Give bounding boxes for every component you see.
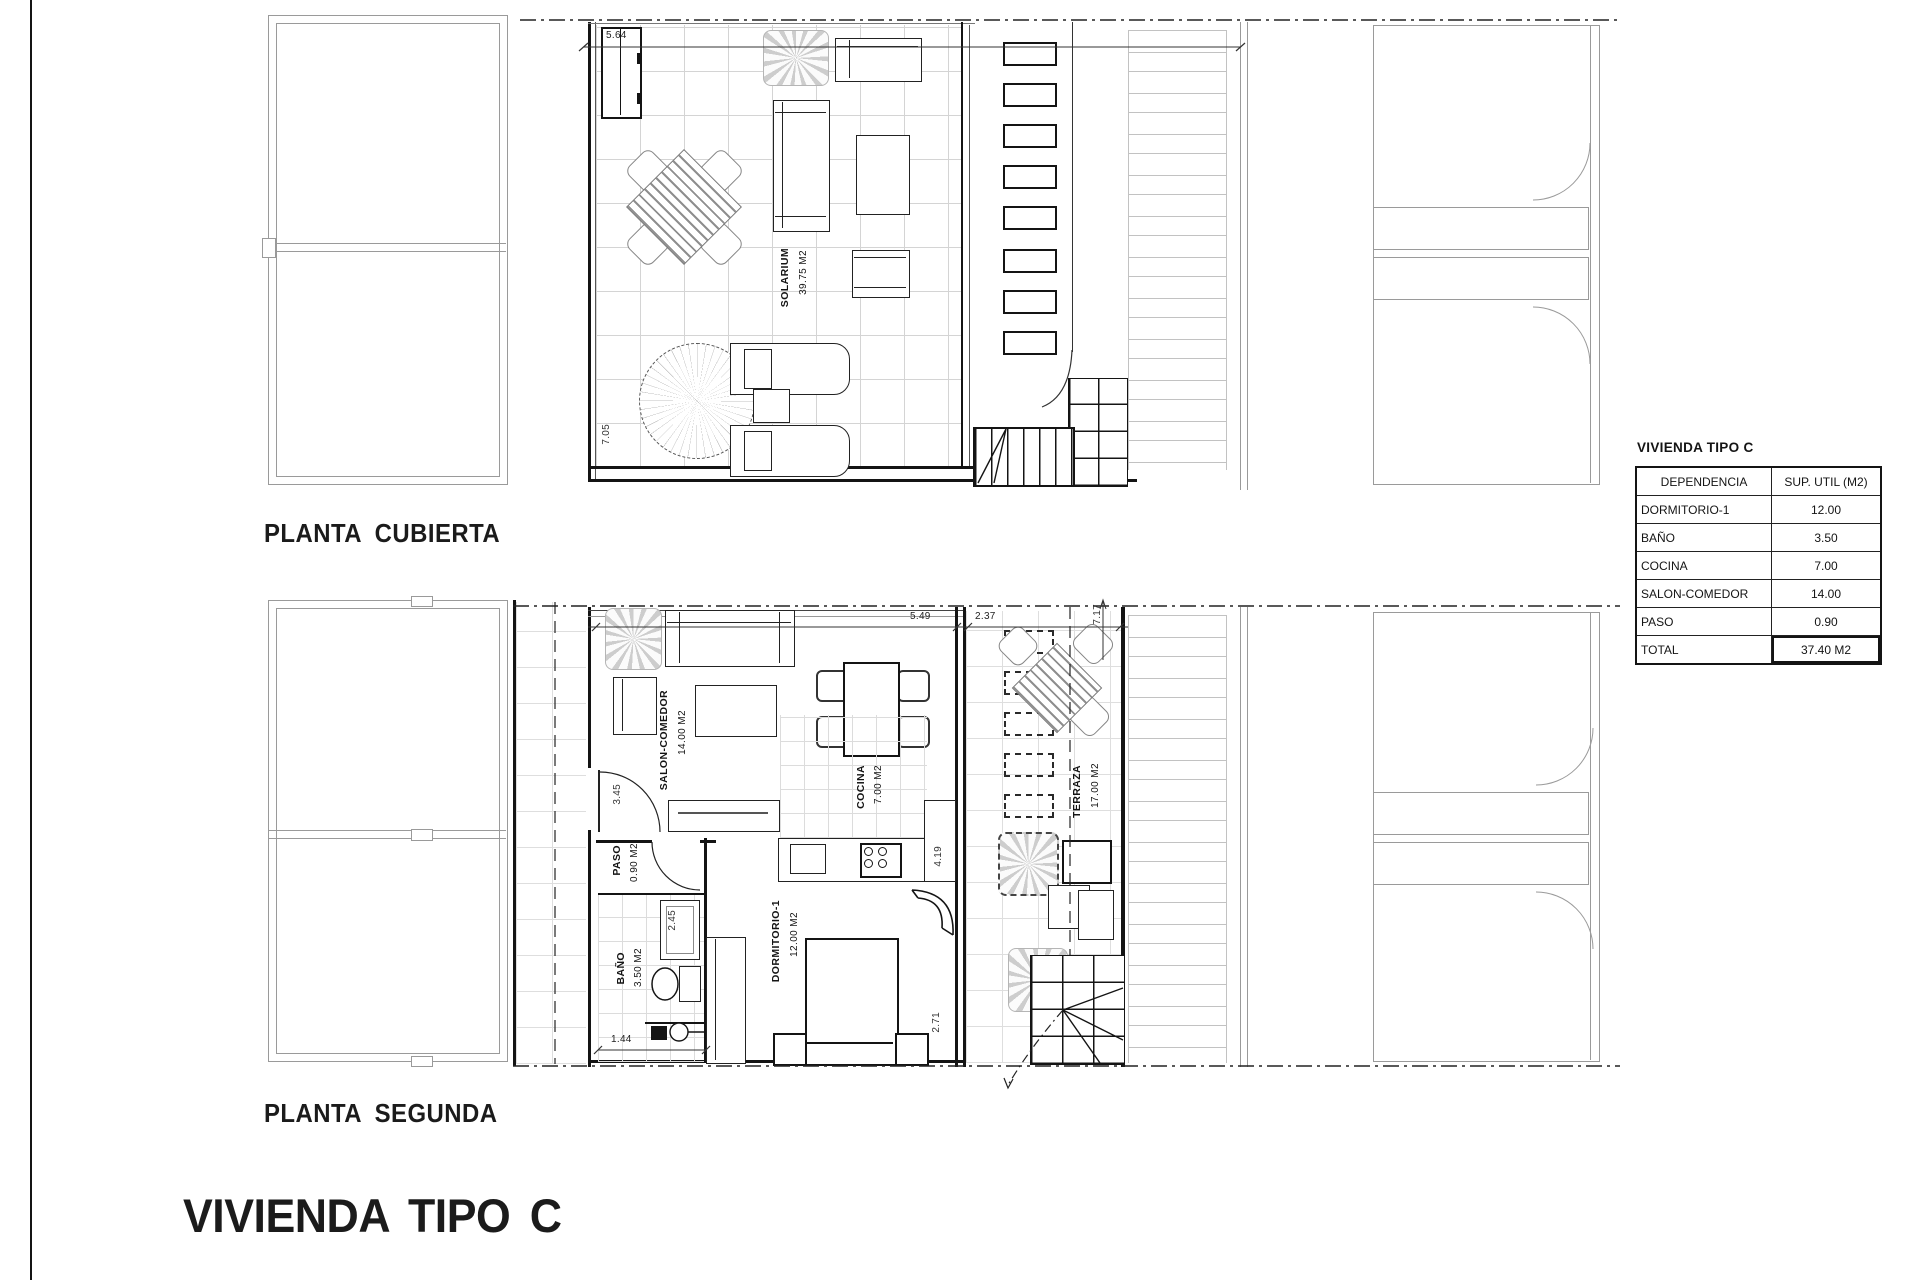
pergola-beam-1	[1003, 42, 1057, 66]
pergola-beam-5	[1003, 206, 1057, 230]
vanity-cabinet	[651, 1026, 667, 1040]
table-row: SALON-COMEDOR 14.00	[1636, 580, 1881, 608]
summary-header-row: DEPENDENCIA SUP. UTIL (M2)	[1636, 467, 1881, 496]
p2-entry-door-leaf	[598, 770, 600, 832]
plan-segunda-title: PLANTA SEGUNDA	[264, 1100, 497, 1126]
sheet-title: VIVIENDA TIPO C	[183, 1192, 562, 1239]
cocina-floor	[780, 715, 927, 838]
bano-area: 3.50 M2	[632, 948, 645, 987]
table-row: COCINA 7.00	[1636, 552, 1881, 580]
winder-stair	[1030, 955, 1125, 1065]
p2-party-line-a	[1240, 607, 1241, 1067]
wardrobe-inner-line	[715, 939, 716, 1060]
p1-wall-left-inner	[595, 22, 596, 482]
p1-wall-top	[588, 23, 975, 24]
p1-sofa-side-back	[782, 102, 783, 228]
row-total-value: 37.40 M2	[1772, 636, 1882, 665]
burner-4	[878, 859, 887, 868]
bedroom-armchair	[912, 890, 953, 935]
p2-dining-chair-3	[897, 670, 930, 702]
p2-neighbour-slats	[1128, 615, 1227, 1063]
summary-header-sup-util: SUP. UTIL (M2)	[1772, 467, 1882, 496]
p2-planter-salon	[605, 608, 662, 670]
p2-dim-bano-interior: 2.45	[668, 910, 678, 931]
p1-stair-landing	[1068, 378, 1128, 487]
table-row: BAÑO 3.50	[1636, 524, 1881, 552]
stair-exit-arrow	[1004, 1078, 1013, 1088]
cocina-area: 7.00 M2	[872, 765, 885, 804]
p1-stair-flight	[973, 427, 1075, 487]
p1-sofa-side-arm-bottom	[775, 216, 826, 217]
p2-wall-left-lower	[588, 830, 591, 1067]
p2-armchair-back	[622, 679, 623, 731]
cocina-label: COCINA	[855, 765, 869, 809]
row-bano-name: BAÑO	[1636, 524, 1772, 552]
solarium-area: 39.75 M2	[797, 250, 810, 295]
summary-table-title: VIVIENDA TIPO C	[1637, 440, 1754, 455]
wardrobe	[706, 937, 746, 1064]
p2-sofa	[665, 610, 795, 667]
p2-left-unit-inner	[276, 608, 500, 1054]
dormitorio-label: DORMITORIO-1	[770, 900, 784, 982]
p1-wall-right-inner	[969, 25, 970, 468]
table-row: PASO 0.90	[1636, 608, 1881, 636]
summary-table: DEPENDENCIA SUP. UTIL (M2) DORMITORIO-1 …	[1635, 466, 1882, 665]
p1-left-unit-divider-a	[268, 243, 506, 244]
row-cocina-value: 7.00	[1772, 552, 1882, 580]
row-paso-value: 0.90	[1772, 608, 1882, 636]
p1-dim-left: 7.05	[602, 424, 612, 445]
row-bano-value: 3.50	[1772, 524, 1882, 552]
bano-label: BAÑO	[615, 952, 629, 985]
row-cocina-name: COCINA	[1636, 552, 1772, 580]
plan-cubierta-title: PLANTA CUBIERTA	[264, 520, 500, 546]
paso-area: 0.90 M2	[628, 843, 641, 882]
p2-sofa-back	[667, 622, 791, 623]
pergola-beam-4	[1003, 165, 1057, 189]
p1-side-table-line-b	[854, 287, 906, 288]
drawing-sheet: 5.64 7.05 SOLARIUM 39.75 M2 PLANTA CUBIE…	[0, 0, 1920, 1280]
terraza-table	[1062, 840, 1112, 884]
p1-left-unit-window-notch	[262, 238, 276, 258]
burner-3	[864, 859, 873, 868]
chimney-tick-1	[637, 53, 642, 64]
p2-left-unit-notch-mid	[411, 829, 433, 841]
p1-left-unit-inner	[276, 23, 500, 477]
lounger-1-pillow	[744, 349, 772, 389]
p1-wall-left	[588, 22, 591, 482]
chimney-tick-2	[637, 93, 642, 104]
p2-left-unit-divider-a	[268, 830, 506, 831]
p2-right-unit-band-1	[1373, 792, 1589, 835]
solarium-label: SOLARIUM	[779, 248, 793, 307]
paso-door-arc	[652, 842, 700, 890]
entry-door-arc	[600, 772, 660, 832]
dormitorio-area: 12.00 M2	[788, 912, 801, 957]
lounger-2-pillow	[744, 431, 772, 471]
p2-left-unit-notch-bottom	[411, 1056, 433, 1067]
p2-sofa-arm-l	[679, 612, 680, 663]
p1-side-table-line-a	[854, 257, 906, 258]
paso-label: PASO	[611, 845, 625, 876]
p2-dim-width-terraza: 2.37	[975, 612, 996, 622]
nightstand-left	[773, 1033, 807, 1066]
p1-wall-right	[961, 22, 963, 468]
p1-walkway-line	[1072, 22, 1073, 352]
burner-1	[864, 847, 873, 856]
p2-party-line-b	[1247, 607, 1248, 1067]
terraza-chair-b	[1078, 890, 1114, 940]
p1-planter	[763, 30, 829, 86]
sheet-border-left	[30, 0, 32, 1280]
toilet-tank	[679, 966, 701, 1002]
row-dormitorio-name: DORMITORIO-1	[1636, 496, 1772, 524]
lounger-table	[753, 389, 790, 423]
p1-right-unit-band-1	[1373, 207, 1589, 250]
pergola-beam-7	[1003, 290, 1057, 314]
terraza-beam-4	[1004, 753, 1054, 777]
terraza-label: TERRAZA	[1071, 765, 1085, 818]
walkway-floor	[516, 602, 586, 1064]
p1-sofa-side-arm-top	[775, 112, 826, 113]
table-row: TOTAL 37.40 M2	[1636, 636, 1881, 665]
pergola-beam-8	[1003, 331, 1057, 355]
pergola-beam-3	[1003, 124, 1057, 148]
p2-dim-dormitorio: 2.71	[932, 1012, 942, 1033]
burner-2	[878, 847, 887, 856]
p1-dim-top: 5.64	[606, 31, 627, 41]
p2-right-unit-edge	[1590, 612, 1591, 1060]
p2-sofa-arm-r	[779, 612, 780, 663]
p2-dim-bano-width: 1.44	[611, 1035, 632, 1045]
table-row: DORMITORIO-1 12.00	[1636, 496, 1881, 524]
bed-fold-line	[807, 1042, 893, 1044]
salon-label: SALON-COMEDOR	[658, 690, 672, 790]
p2-left-unit-notch-top	[411, 596, 433, 607]
p2-dim-width-main: 5.49	[910, 612, 931, 622]
p2-coffee-table	[695, 685, 777, 737]
chimney-inner-line	[620, 29, 621, 115]
terraza-beam-5	[1004, 794, 1054, 818]
p1-neighbour-slats	[1128, 30, 1227, 470]
p1-right-unit-edge	[1590, 25, 1591, 483]
p1-coffee-table	[856, 135, 910, 215]
nightstand-right	[895, 1033, 929, 1066]
p2-wall-salon-paso-b	[700, 840, 716, 843]
p2-armchair	[613, 677, 657, 735]
p2-dim-cocina: 4.19	[934, 846, 944, 867]
row-salon-name: SALON-COMEDOR	[1636, 580, 1772, 608]
pergola-beam-6	[1003, 249, 1057, 273]
p2-wall-salon-paso-a	[596, 840, 652, 843]
terraza-area: 17.00 M2	[1089, 763, 1102, 808]
row-paso-name: PASO	[1636, 608, 1772, 636]
p2-wall-left-upper	[588, 607, 591, 768]
p1-right-unit-band-2	[1373, 257, 1589, 300]
p1-sofa-top-back	[837, 46, 918, 47]
p1-right-unit-outer	[1373, 25, 1600, 485]
kitchen-sink	[790, 844, 826, 874]
bed	[805, 938, 899, 1066]
walkway-wall	[513, 600, 516, 1066]
row-salon-value: 14.00	[1772, 580, 1882, 608]
p1-left-unit-divider-b	[268, 251, 506, 252]
p2-right-unit-band-2	[1373, 842, 1589, 885]
p2-left-unit-divider-b	[268, 838, 506, 839]
salon-area: 14.00 M2	[676, 710, 689, 755]
p1-party-line-b	[1247, 22, 1248, 490]
p2-dim-salon: 3.45	[613, 784, 623, 805]
p2-right-unit-outer	[1373, 612, 1600, 1062]
row-total-name: TOTAL	[1636, 636, 1772, 665]
p1-party-line-a	[1240, 22, 1241, 490]
p2-dim-terraza-depth: 7.17	[1093, 604, 1103, 625]
p2-tv-board	[668, 800, 780, 832]
row-dormitorio-value: 12.00	[1772, 496, 1882, 524]
pergola-beam-2	[1003, 83, 1057, 107]
summary-header-dependencia: DEPENDENCIA	[1636, 467, 1772, 496]
p2-tv-line	[678, 812, 768, 814]
vanity-counter	[645, 1022, 710, 1024]
kitchen-fridge	[924, 800, 956, 882]
